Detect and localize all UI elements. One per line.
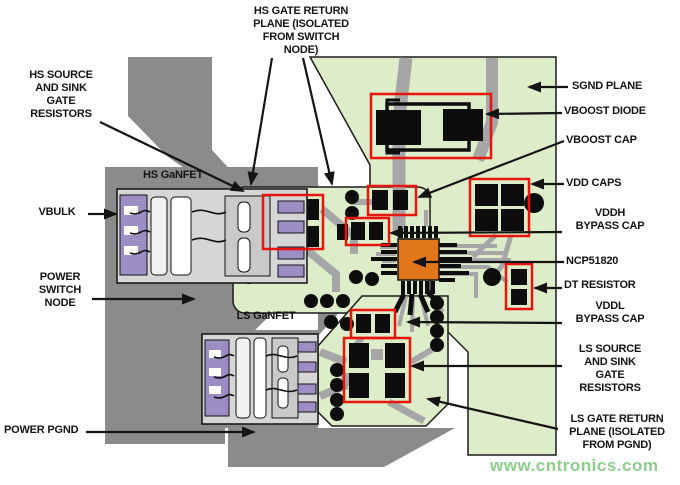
vddh-bypass-cap-component xyxy=(337,222,383,240)
label-vddh-bypass-cap: VDDH BYPASS CAP xyxy=(560,207,660,233)
label-hs-gate-return-plane: HS GATE RETURN PLANE (ISOLATED FROM SWIT… xyxy=(226,5,376,57)
callout-arrow-vddh xyxy=(391,232,562,233)
label-vboost-diode: VBOOST DIODE xyxy=(564,105,646,118)
label-ls-source-sink-resistors: LS SOURCE AND SINK GATE RESISTORS xyxy=(562,343,658,395)
fet-die xyxy=(254,338,266,418)
label-hs-ganfet: HS GaNFET xyxy=(136,169,210,182)
label-dt-resistor: DT RESISTOR xyxy=(564,279,636,292)
label-hs-source-sink-resistors: HS SOURCE AND SINK GATE RESISTORS xyxy=(6,69,116,121)
fet-die xyxy=(171,197,191,275)
chip-body xyxy=(398,239,439,280)
callout-arrow-hs-return-left xyxy=(251,58,272,184)
ls-ganfet-package xyxy=(202,334,318,424)
label-sgnd-plane: SGND PLANE xyxy=(572,80,642,93)
label-vboost-cap: VBOOST CAP xyxy=(566,134,637,147)
label-power-pgnd: POWER PGND xyxy=(4,424,94,437)
power-pgnd-plane xyxy=(228,428,455,467)
label-ls-gate-return-plane: LS GATE RETURN PLANE (ISOLATED FROM PGND… xyxy=(556,413,678,452)
label-ncp51820: NCP51820 xyxy=(566,255,618,268)
fet-die xyxy=(151,197,167,275)
fet-die xyxy=(236,338,250,418)
label-vbulk: VBULK xyxy=(28,206,86,219)
label-ls-ganfet: LS GaNFET xyxy=(224,310,308,323)
callout-arrow-vddl xyxy=(408,322,562,323)
watermark-text: www.cntronics.com xyxy=(490,456,658,476)
label-power-switch-node: POWER SWITCH NODE xyxy=(14,271,106,310)
callout-arrow-vboost-diode xyxy=(487,113,562,114)
label-vdd-caps: VDD CAPS xyxy=(566,177,621,190)
pcb-layout-diagram: HS GATE RETURN PLANE (ISOLATED FROM SWIT… xyxy=(0,0,680,485)
hs-ganfet-package xyxy=(117,189,307,283)
label-vddl-bypass-cap: VDDL BYPASS CAP xyxy=(560,300,660,326)
